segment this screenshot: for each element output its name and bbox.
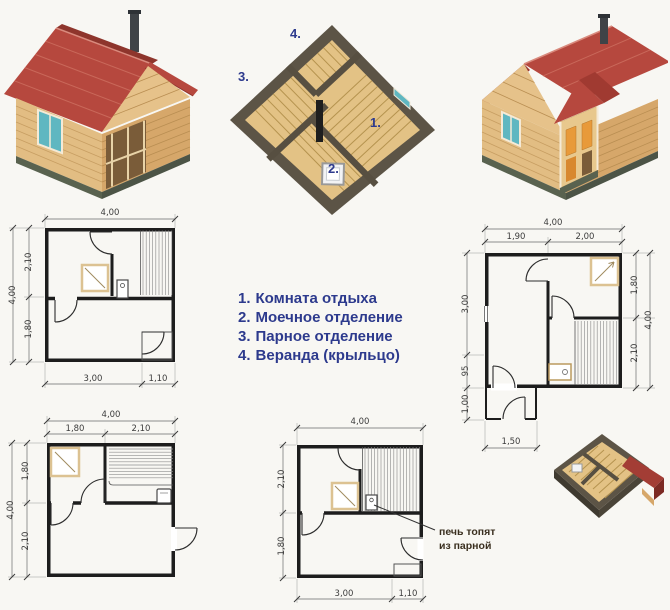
dim-label: 1,90 bbox=[507, 232, 526, 242]
dim-label: 2,10 bbox=[132, 424, 151, 434]
dim-label: 4,00 bbox=[8, 286, 18, 305]
door-opening bbox=[491, 384, 517, 391]
room-label-veranda: 4. bbox=[290, 26, 301, 41]
dim-label: 4,00 bbox=[351, 417, 370, 427]
dim-label: 95 bbox=[461, 366, 471, 377]
stove bbox=[117, 280, 128, 298]
dim-label: 2,00 bbox=[576, 232, 595, 242]
legend-item-2: 2. Моечное отделение bbox=[238, 308, 453, 327]
door-opening bbox=[171, 527, 177, 551]
mini-basin bbox=[572, 464, 582, 472]
floor-plan-top-left: 4,00 4,00 2,10 1,80 3,00 1,10 bbox=[8, 198, 188, 393]
stove bbox=[366, 495, 377, 510]
legend-item-3: 3. Парное отделение bbox=[238, 327, 453, 346]
chimney-pipe bbox=[316, 100, 323, 142]
door-opening bbox=[418, 537, 424, 561]
dim-label: 2,10 bbox=[24, 253, 34, 272]
dim-label: 1,80 bbox=[21, 462, 31, 481]
mini-cutaway-view bbox=[542, 426, 670, 558]
shower-tray bbox=[82, 265, 108, 291]
doors bbox=[493, 259, 574, 419]
steam-benches bbox=[109, 449, 173, 485]
project-sheet: { "legend": { "items": [ {"num": "1.", "… bbox=[0, 0, 670, 610]
legend: 1. Комната отдыха 2. Моечное отделение 3… bbox=[238, 289, 453, 365]
annotation-line-2: из парной bbox=[439, 540, 491, 552]
dim-label: 1,80 bbox=[277, 537, 287, 556]
porch-area bbox=[142, 332, 172, 360]
dim-label: 4,00 bbox=[102, 410, 121, 420]
annotation-line-1: печь топят bbox=[439, 526, 495, 538]
dim-label: 1,80 bbox=[630, 276, 640, 295]
dim-label: 4,00 bbox=[6, 501, 16, 520]
walls bbox=[299, 447, 424, 577]
dim-label: 4,00 bbox=[644, 311, 654, 330]
steam-benches bbox=[575, 321, 616, 385]
dim-label: 4,00 bbox=[101, 208, 120, 218]
legend-num: 1. bbox=[238, 289, 251, 308]
dim-label: 1,00 bbox=[461, 395, 471, 414]
room-label-wash: 2. bbox=[328, 161, 339, 176]
stove bbox=[157, 489, 171, 503]
dim-label: 2,10 bbox=[630, 344, 640, 363]
isometric-cutaway-view: 4. 3. 1. 2. bbox=[212, 2, 458, 228]
dim-label: 4,00 bbox=[544, 218, 563, 228]
floor-plan-bottom-left: 4,00 1,80 2,10 1,80 2,10 4,00 bbox=[5, 405, 220, 610]
porch-door bbox=[566, 156, 576, 182]
porch-area bbox=[394, 564, 421, 576]
legend-label: Парное отделение bbox=[256, 327, 393, 346]
dim-label: 3,00 bbox=[335, 589, 354, 599]
legend-label: Моечное отделение bbox=[256, 308, 403, 327]
legend-item-1: 1. Комната отдыха bbox=[238, 289, 453, 308]
stove-annotation: печь топят из парной bbox=[374, 505, 495, 552]
legend-num: 2. bbox=[238, 308, 251, 327]
dim-label: 3,00 bbox=[461, 295, 471, 314]
dim-label: 2,10 bbox=[277, 470, 287, 489]
chimney bbox=[128, 10, 141, 52]
dimensions: 4,00 1,80 2,10 1,80 2,10 4,00 bbox=[6, 410, 178, 580]
dim-label: 3,00 bbox=[84, 374, 103, 384]
house-3d-front-left-view bbox=[2, 2, 202, 200]
shower-tray bbox=[591, 258, 618, 285]
legend-item-4: 4. Веранда (крыльцо) bbox=[238, 346, 453, 365]
stove bbox=[549, 364, 571, 380]
floor-plan-bottom-center: 4,00 2,10 1,80 3,00 1,10 bbox=[272, 413, 507, 610]
porch-window bbox=[566, 126, 576, 156]
room-label-rest: 1. bbox=[370, 115, 381, 130]
walls bbox=[47, 230, 174, 361]
dim-label: 2,10 bbox=[21, 532, 31, 551]
dim-label: 1,10 bbox=[399, 589, 418, 599]
porch-window bbox=[582, 120, 592, 150]
leader-line bbox=[374, 505, 435, 530]
shower-tray bbox=[332, 483, 358, 509]
legend-num: 4. bbox=[238, 346, 251, 365]
dim-label: 1,10 bbox=[149, 374, 168, 384]
legend-label: Комната отдыха bbox=[256, 289, 377, 308]
legend-num: 3. bbox=[238, 327, 251, 346]
dim-label: 1,80 bbox=[24, 320, 34, 339]
shower-tray bbox=[51, 448, 79, 476]
room-label-steam: 3. bbox=[238, 69, 249, 84]
house-3d-front-right-view bbox=[462, 0, 668, 202]
legend-label: Веранда (крыльцо) bbox=[256, 346, 400, 365]
steam-benches bbox=[141, 231, 172, 296]
dim-label: 1,80 bbox=[66, 424, 85, 434]
